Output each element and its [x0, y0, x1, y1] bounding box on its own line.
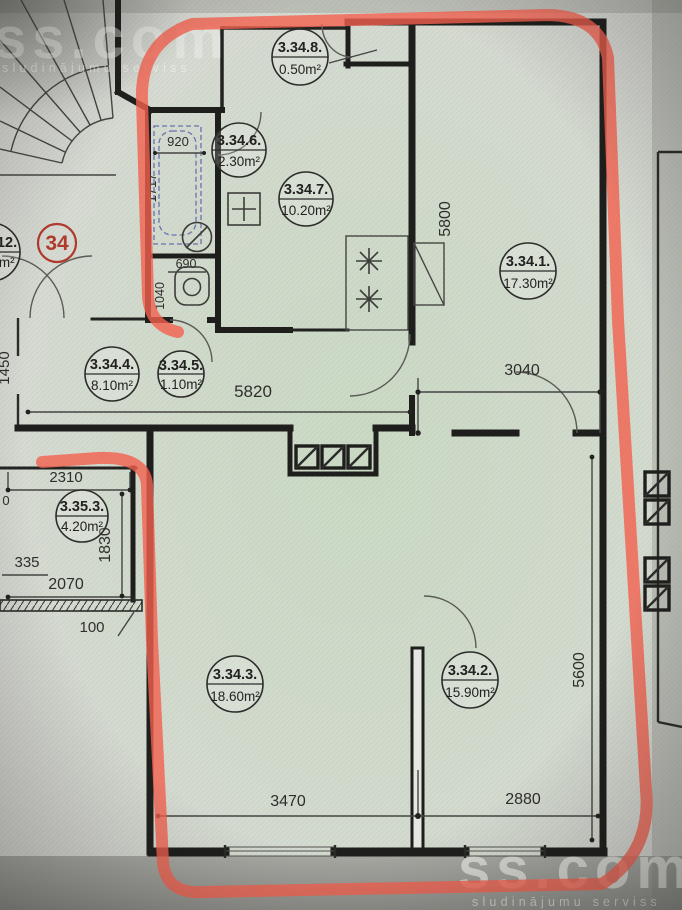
photo-vignette	[0, 0, 682, 910]
floorplan-canvas: 920 1717 690 1040 5800 5820 3040 1450 23…	[0, 0, 682, 910]
floorplan-photo: 920 1717 690 1040 5800 5820 3040 1450 23…	[0, 0, 682, 910]
